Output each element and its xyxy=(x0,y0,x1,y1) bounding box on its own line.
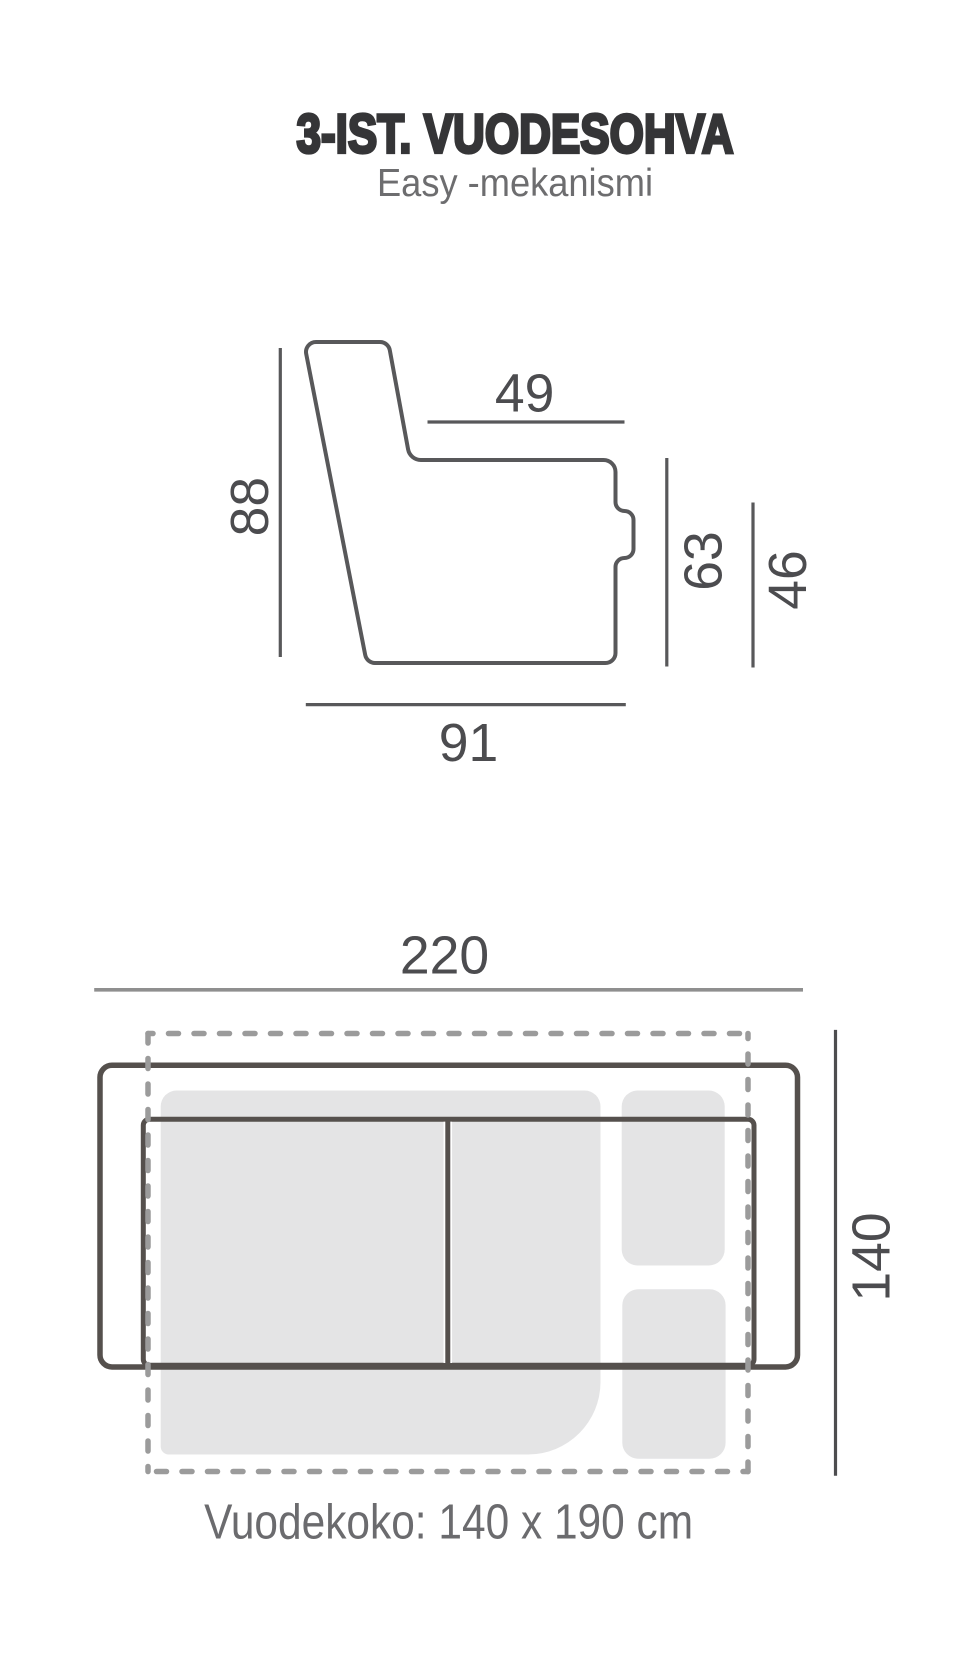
svg-text:46: 46 xyxy=(759,550,818,610)
svg-text:88: 88 xyxy=(221,477,280,537)
svg-text:91: 91 xyxy=(439,714,499,773)
svg-text:220: 220 xyxy=(400,926,489,985)
svg-text:3-IST. VUODESOHVA: 3-IST. VUODESOHVA xyxy=(297,103,734,165)
svg-text:Easy -mekanismi: Easy -mekanismi xyxy=(377,162,653,205)
svg-text:49: 49 xyxy=(495,364,555,423)
svg-text:140: 140 xyxy=(843,1212,902,1301)
svg-text:63: 63 xyxy=(675,531,734,591)
svg-text:Vuodekoko: 140 x 190 cm: Vuodekoko: 140 x 190 cm xyxy=(204,1496,693,1550)
